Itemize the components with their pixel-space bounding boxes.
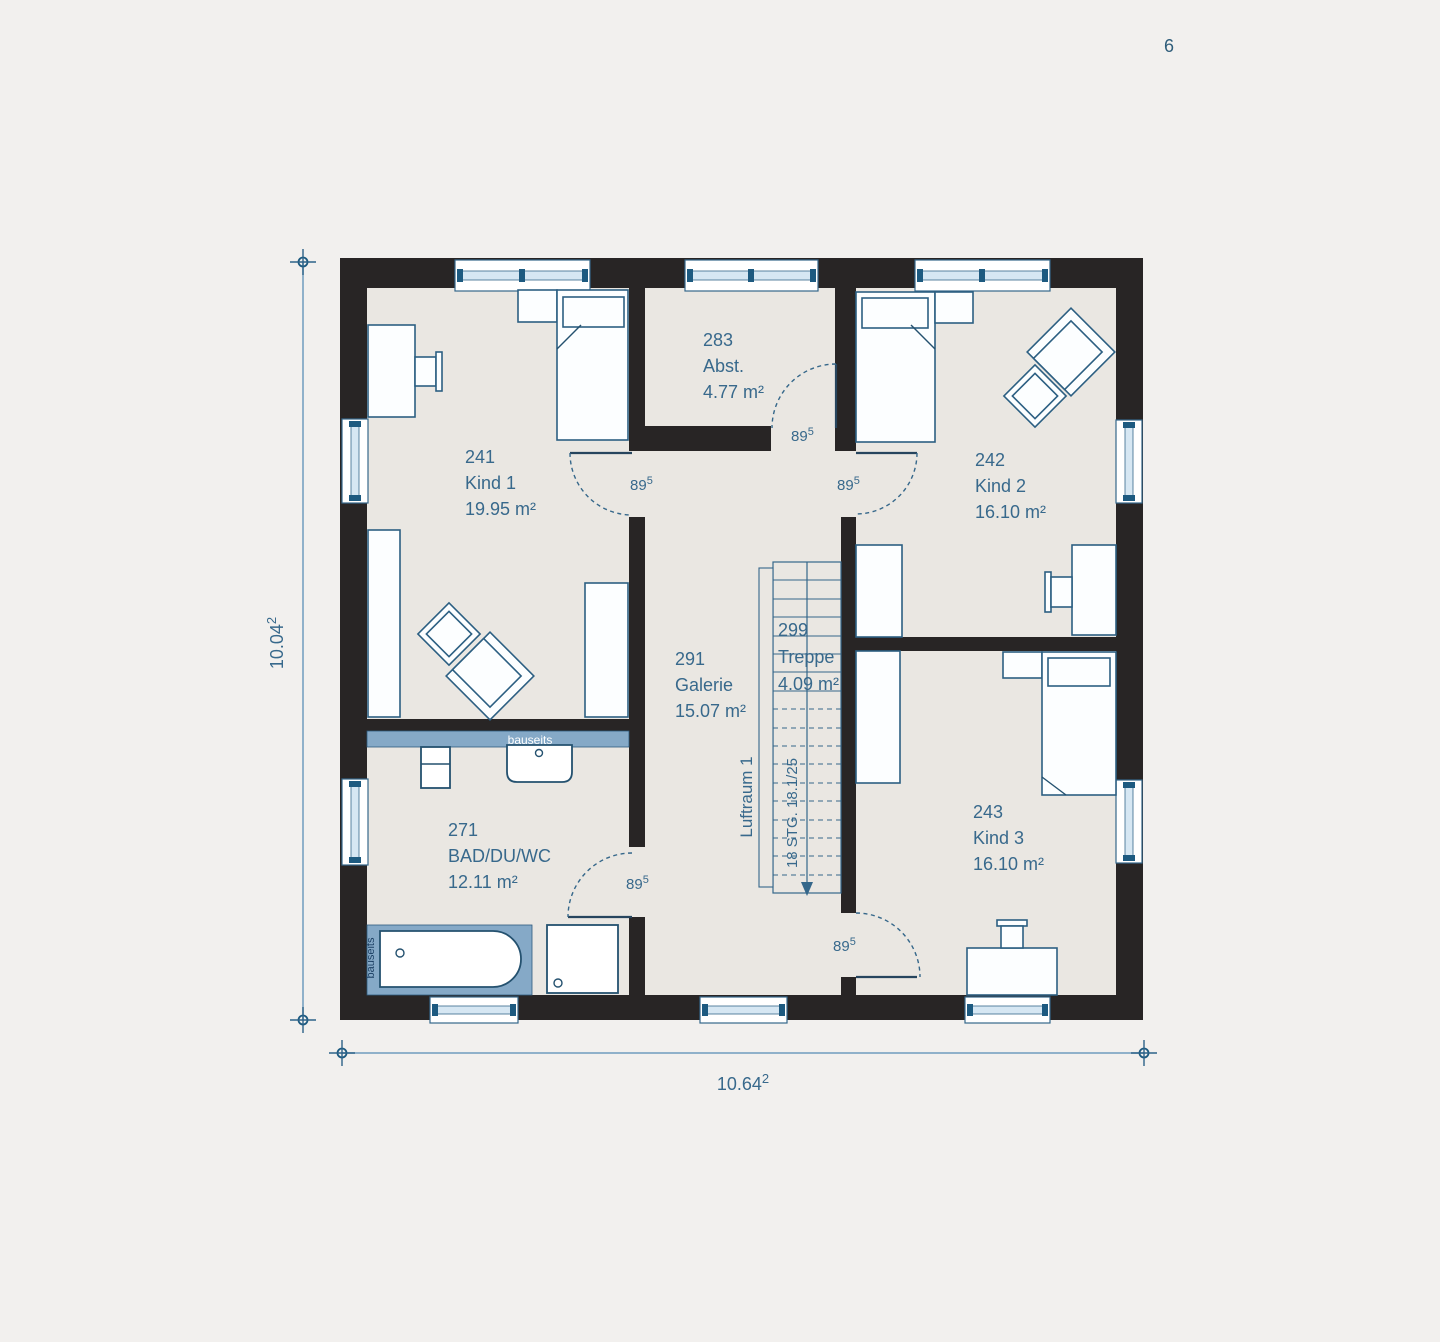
floor-plan-drawing: 241 Kind 1 19.95 m² 242 Kind 2 1 <box>0 0 1440 1342</box>
window <box>685 260 818 291</box>
window <box>342 419 368 503</box>
page-number: 6 <box>1164 36 1174 56</box>
svg-text:Galerie: Galerie <box>675 675 733 695</box>
svg-text:4.77 m²: 4.77 m² <box>703 382 764 402</box>
svg-text:15.07 m²: 15.07 m² <box>675 701 746 721</box>
dimension-label-bottom: 10.642 <box>717 1071 769 1094</box>
svg-text:243: 243 <box>973 802 1003 822</box>
stair-count-note: 18 STG. 18.1/25 <box>784 758 801 868</box>
window <box>1116 420 1142 503</box>
window <box>915 260 1050 291</box>
vanity-counter <box>367 731 629 747</box>
tub-site-label: bauseits <box>365 937 377 978</box>
wardrobe <box>856 545 902 637</box>
svg-text:283: 283 <box>703 330 733 350</box>
window <box>430 997 518 1023</box>
bed <box>557 290 628 440</box>
nightstand <box>1003 652 1042 678</box>
svg-text:16.10 m²: 16.10 m² <box>975 502 1046 522</box>
staircase: 299 Treppe 4.09 m² 18 STG. 18.1/25 <box>759 562 841 896</box>
svg-text:BAD/DU/WC: BAD/DU/WC <box>448 846 551 866</box>
svg-text:Kind 2: Kind 2 <box>975 476 1026 496</box>
pillow <box>1048 658 1110 686</box>
desk <box>967 948 1057 995</box>
svg-text:Abst.: Abst. <box>703 356 744 376</box>
svg-text:291: 291 <box>675 649 705 669</box>
shower <box>547 925 618 993</box>
svg-text:4.09 m²: 4.09 m² <box>778 674 839 694</box>
window <box>342 779 368 865</box>
pillow <box>862 298 928 328</box>
svg-text:271: 271 <box>448 820 478 840</box>
desk-chair <box>1045 572 1072 612</box>
nightstand <box>518 290 557 322</box>
window <box>965 997 1050 1023</box>
svg-text:Treppe: Treppe <box>778 647 834 667</box>
wardrobe <box>856 651 900 783</box>
window <box>455 260 590 291</box>
svg-text:242: 242 <box>975 450 1005 470</box>
void-label: Luftraum 1 <box>737 756 756 837</box>
dimension-label-left: 10.042 <box>264 617 287 669</box>
bed <box>1042 652 1116 795</box>
bathtub <box>380 931 521 987</box>
washbasin <box>507 745 572 782</box>
desk-chair <box>997 920 1027 948</box>
svg-text:299: 299 <box>778 620 808 640</box>
svg-text:19.95 m²: 19.95 m² <box>465 499 536 519</box>
svg-text:241: 241 <box>465 447 495 467</box>
floor-plan-page: 241 Kind 1 19.95 m² 242 Kind 2 1 <box>0 0 1440 1342</box>
stair-railing <box>759 568 773 887</box>
toilet <box>421 747 450 788</box>
pillow <box>563 297 624 327</box>
wardrobe <box>368 530 400 717</box>
svg-text:12.11 m²: 12.11 m² <box>448 872 518 892</box>
bed <box>856 292 935 442</box>
window <box>700 997 787 1023</box>
svg-text:Kind 3: Kind 3 <box>973 828 1024 848</box>
svg-text:Kind 1: Kind 1 <box>465 473 516 493</box>
desk <box>1072 545 1116 635</box>
nightstand <box>935 292 973 323</box>
desk-chair <box>415 352 442 391</box>
window <box>1116 780 1142 863</box>
wardrobe <box>585 583 628 717</box>
svg-text:16.10 m²: 16.10 m² <box>973 854 1044 874</box>
desk <box>368 325 415 417</box>
